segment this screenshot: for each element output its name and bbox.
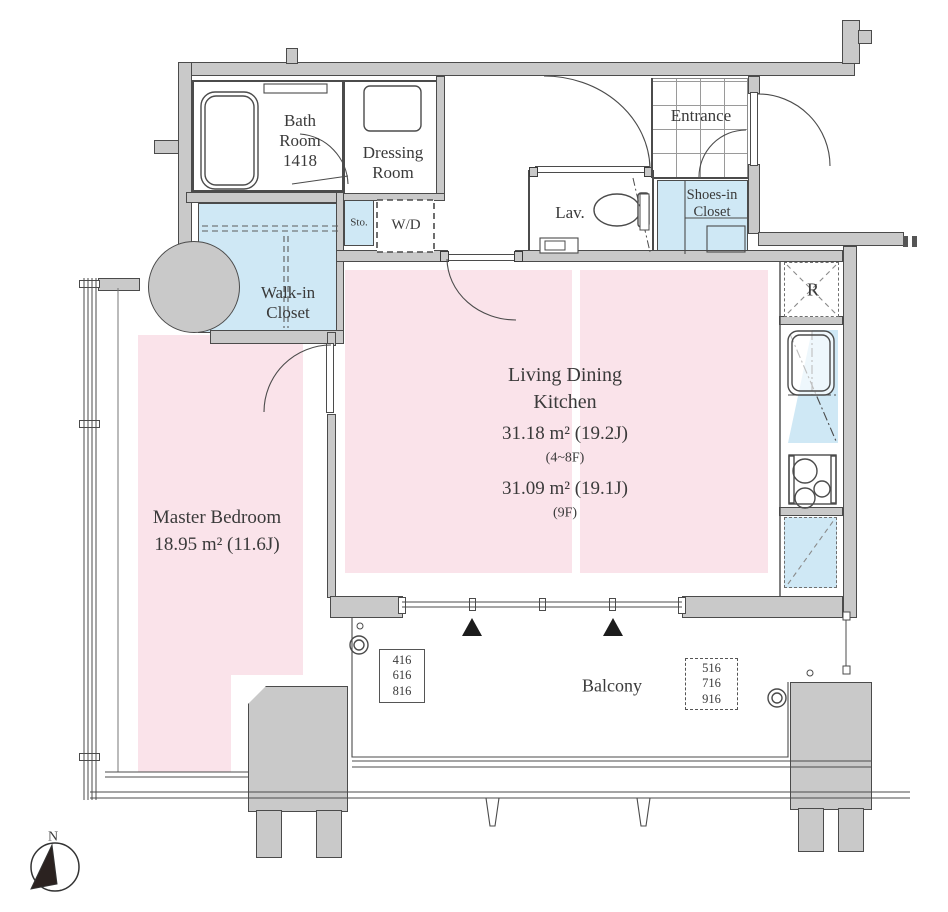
stove-burner-1	[793, 459, 817, 483]
ldk-area-main: 31.18 m² (19.2J)	[502, 423, 628, 445]
balcony-railing-lower	[90, 792, 910, 798]
stove-burner-2	[814, 481, 830, 497]
railing-bracket-1	[486, 798, 499, 826]
window-mullion-2	[539, 598, 546, 611]
entrance-door-leaf	[750, 92, 758, 166]
wall-ldk-bottom-left	[330, 596, 403, 618]
pillar-balcony-right-foot-2	[838, 808, 864, 852]
wall-top	[178, 62, 855, 76]
unit-numbers-left-box: 416 616 816	[379, 649, 425, 703]
bedroom-window	[105, 772, 248, 777]
ldk-name-line1: Living Dining	[508, 364, 622, 388]
wall-wic-bottom	[210, 330, 344, 344]
door-hinge-block-4	[514, 251, 523, 262]
master-bedroom-floor-lower	[138, 675, 231, 772]
pillar-balcony-left-foot-2	[316, 810, 342, 858]
stove-burner-3	[795, 488, 815, 508]
wall-bath-bottom	[186, 192, 344, 203]
wall-end-tick-1	[903, 236, 908, 247]
balcony-label: Balcony	[582, 675, 642, 696]
pillar-balcony-right-foot-1	[798, 808, 824, 852]
wall-entrance-bottom-stub	[748, 164, 760, 234]
wall-top-notch	[286, 48, 298, 64]
ldk-floors-main: (4~8F)	[546, 451, 585, 468]
window-mullion-1	[469, 598, 476, 611]
master-bedroom-name: Master Bedroom	[153, 507, 281, 529]
wall-ldk-top-right	[515, 250, 843, 262]
shoes-closet-label: Shoes-in Closet	[687, 187, 738, 221]
kitchen-counter-reserve-box	[784, 517, 837, 588]
door-hinge-block-3	[440, 251, 449, 262]
washer-dryer-label: W/D	[391, 217, 420, 235]
ldk-name-line2: Kitchen	[533, 391, 596, 415]
master-door-leaf	[326, 343, 334, 413]
window-cap-right	[678, 597, 686, 614]
wall-left-tab	[154, 140, 179, 154]
wall-dressing-bottom	[340, 193, 445, 201]
wall-end-tick-2	[912, 236, 917, 247]
door-marker-triangle-1	[462, 618, 482, 636]
ldk-door-leaf	[447, 254, 516, 261]
walk-in-closet-label: Walk-in Closet	[261, 283, 315, 323]
unit-numbers-right-box: 516 716 916	[685, 658, 738, 710]
lavatory-box	[528, 170, 654, 256]
wall-dressing-right	[436, 76, 445, 198]
dressing-room-label: Dressing Room	[363, 143, 423, 183]
kitchen-sink-blue	[788, 330, 838, 443]
ldk-floor-divider	[572, 270, 580, 573]
balcony-drain-right	[768, 689, 786, 707]
bath-room-box	[192, 80, 344, 192]
door-marker-triangle-2	[603, 618, 623, 636]
window-mullion-3	[609, 598, 616, 611]
pillar-balcony-left	[248, 686, 348, 812]
kitchen-divider-upper	[779, 316, 843, 325]
balcony-drain-left	[350, 636, 368, 654]
curtainwall-tick-2	[79, 420, 100, 428]
entrance-label: Entrance	[671, 106, 731, 126]
north-compass	[31, 843, 79, 891]
wall-ldk-bottom-right	[682, 596, 843, 618]
wall-curtain-tab	[98, 278, 140, 291]
pillar-balcony-left-foot-1	[256, 810, 282, 858]
curtainwall-tick-1	[79, 280, 100, 288]
stove	[789, 455, 836, 504]
curtainwall-tick-3	[79, 753, 100, 761]
master-bedroom-floor	[138, 335, 303, 675]
north-arrow	[31, 845, 57, 889]
kitchen-sink	[788, 331, 834, 395]
curtain-wall-lines	[84, 278, 96, 800]
refrigerator-label: R	[807, 279, 819, 300]
master-bedroom-area: 18.95 m² (11.6J)	[154, 534, 279, 556]
lavatory-label: Lav.	[555, 203, 585, 223]
ldk-area-alt: 31.09 m² (19.1J)	[502, 478, 628, 500]
entrance-tile-floor	[652, 78, 748, 178]
wall-right-horizontal	[758, 232, 904, 246]
railing-bracket-2	[637, 798, 650, 826]
wall-right-vertical	[843, 246, 857, 618]
window-cap-left	[398, 597, 406, 614]
ldk-floors-alt: (9F)	[553, 506, 577, 523]
door-hinge-block-1	[529, 167, 538, 177]
wall-ldk-top-left	[336, 250, 448, 262]
wall-wic-right	[336, 192, 344, 332]
wall-master-ldk-lower	[327, 414, 336, 598]
pillar-balcony-right	[790, 682, 872, 810]
ldk-floor	[345, 270, 768, 573]
bath-room-label: Bath Room 1418	[279, 111, 321, 171]
compass-north-label: N	[48, 830, 58, 847]
storage-label: Sto.	[350, 217, 367, 230]
lavatory-door-arc	[544, 76, 650, 168]
lavatory-door-leaf	[535, 166, 650, 173]
wall-topright-tab	[858, 30, 872, 44]
kitchen-divider-lower	[779, 507, 843, 516]
pillar-round	[148, 241, 240, 333]
floor-plan: Bath Room 1418 Dressing Room Sto. W/D Wa…	[0, 0, 948, 912]
door-hinge-block-2	[644, 167, 653, 177]
wall-left-upper	[178, 62, 192, 258]
entrance-door-arc	[758, 94, 830, 166]
